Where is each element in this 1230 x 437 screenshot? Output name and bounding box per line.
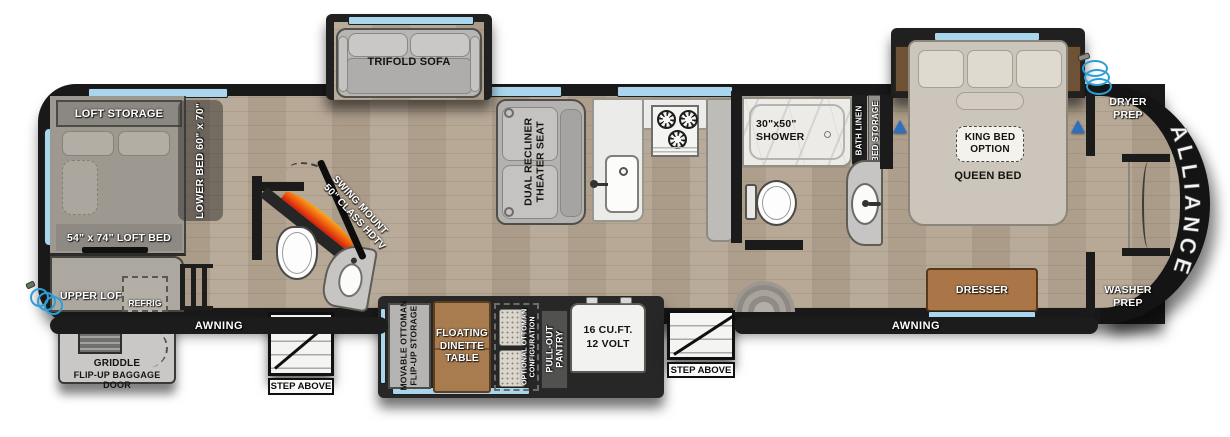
window-kitchen	[617, 86, 733, 97]
dresser: DRESSER	[926, 268, 1038, 312]
loft-storage-label: LOFT STORAGE	[75, 108, 163, 120]
fridge-hinge	[620, 297, 632, 304]
bed-pillow	[918, 50, 964, 88]
movable-ottoman: MOVABLE OTTOMAN FLIP-UP STORAGE	[388, 303, 431, 389]
loft-pillow	[118, 131, 170, 156]
bath-vanity	[846, 160, 883, 246]
fridge-12volt: 16 CU.FT. 12 VOLT	[570, 303, 646, 373]
step-rail	[673, 314, 735, 356]
bed-pillow	[967, 50, 1013, 88]
svg-text:ALLIANCE: ALLIANCE	[1165, 121, 1205, 282]
burner-icon	[679, 110, 698, 129]
brand-logo: ALLIANCE	[1126, 86, 1210, 322]
queen-bed: KING BED OPTION QUEEN BED	[908, 40, 1068, 226]
upper-loft-label: UPPER LOFT	[60, 290, 129, 302]
bath-door-wall	[745, 240, 803, 250]
optional-ottoman-label: OPTIONAL OTTOMAN	[521, 309, 529, 385]
bedside-lamp-icon	[893, 120, 907, 133]
dinette-label: FLOATING	[436, 328, 488, 341]
shower-label: 30"x50"	[756, 118, 804, 131]
sofa-back-cushion	[348, 33, 408, 57]
fridge-label: 16 CU.FT.	[583, 324, 632, 338]
queen-bed-label: QUEEN BED	[910, 170, 1066, 182]
bedroom-divider-wall	[880, 95, 893, 169]
loft-stairs	[180, 264, 213, 310]
kitchen-sink	[605, 155, 639, 213]
pullout-pantry: PULL-OUT PANTRY	[541, 310, 568, 389]
optional-ottoman-zone: OPTIONAL OTTOMAN CONFIGURATION	[494, 303, 539, 391]
theater-seat-label: DUAL RECLINER THEATER SEAT	[496, 99, 574, 225]
loft-bed-label: 54" x 74" LOFT BED	[67, 232, 171, 244]
shower: 30"x50" SHOWER	[742, 97, 852, 167]
awning-right-label: AWNING	[892, 320, 940, 332]
halfbath-toilet	[276, 226, 318, 280]
awning-left-label: AWNING	[195, 320, 243, 332]
halfbath-sink	[336, 261, 366, 299]
front-hose-coil	[1078, 54, 1108, 96]
lumbar-pillow	[956, 92, 1024, 110]
bath-faucet-handle	[868, 202, 881, 206]
fridge-hinge	[586, 297, 598, 304]
stove	[651, 105, 699, 157]
step-above-right-label: STEP ABOVE	[671, 365, 732, 376]
faucet	[619, 167, 628, 176]
sofa-back-cushion	[410, 33, 470, 57]
shower-drain	[824, 131, 831, 138]
faucet-knob	[590, 180, 598, 188]
loft-pillow	[62, 131, 114, 156]
floating-dinette-table: FLOATING DINETTE TABLE	[433, 301, 491, 393]
loft-storage: LOFT STORAGE	[56, 100, 182, 127]
awning-right: AWNING	[734, 317, 1098, 334]
lower-bed-zone: LOWER BED 60" x 70"	[178, 100, 223, 221]
step-above-left-label: STEP ABOVE	[271, 381, 332, 392]
bath-toilet	[756, 180, 797, 226]
window-sofa-slide	[348, 16, 474, 25]
refrigerator: REFRIG	[122, 276, 168, 312]
awning-left: AWNING	[50, 317, 388, 334]
trifold-sofa: TRIFOLD SOFA	[336, 28, 482, 98]
trifold-sofa-label: TRIFOLD SOFA	[338, 56, 480, 68]
bath-wall-left	[731, 91, 742, 243]
step-above-left-plate: STEP ABOVE	[268, 378, 334, 395]
rear-hose-coil	[24, 282, 60, 318]
bed-pillow	[1016, 50, 1062, 88]
burner-icon	[657, 110, 676, 129]
entry-steps-right	[667, 310, 735, 360]
laundry-wall-bottom	[1086, 252, 1095, 314]
king-option-label: KING BED	[965, 132, 1016, 145]
bath-linen-cabinet: BATH LINEN	[852, 95, 867, 165]
lower-bed-label: LOWER BED 60" x 70"	[195, 103, 207, 219]
loft-tv	[82, 247, 148, 253]
step-above-right-plate: STEP ABOVE	[667, 362, 735, 378]
refrig-label: REFRIG	[124, 298, 166, 308]
stove-front	[653, 147, 697, 154]
laundry-wall-top	[1086, 92, 1095, 156]
king-bed-option: KING BED OPTION	[956, 126, 1024, 162]
dresser-label: DRESSER	[956, 284, 1008, 296]
bedside-lamp-icon	[1071, 120, 1085, 133]
griddle-label: GRIDDLE	[60, 358, 174, 370]
rv-floorplan: LOFT STORAGE 54" x 74" LOFT BED LOWER BE…	[0, 0, 1230, 437]
loft-body-pillow	[62, 160, 98, 215]
halfbath-faucet	[350, 257, 357, 264]
